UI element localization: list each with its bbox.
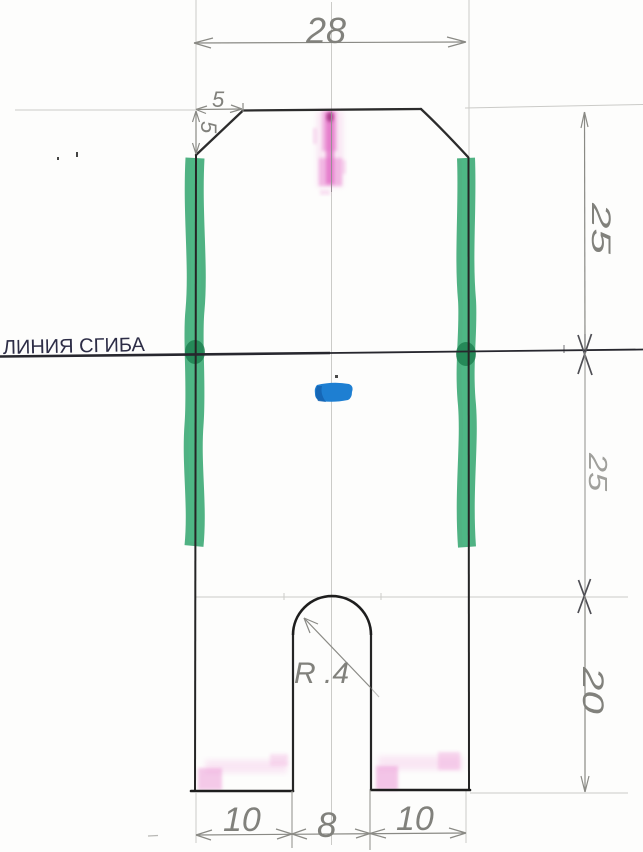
svg-text:ЛИНИЯ СГИБА: ЛИНИЯ СГИБА — [3, 334, 146, 359]
svg-text:8: 8 — [317, 806, 337, 845]
svg-text:5: 5 — [196, 121, 221, 134]
svg-text:28: 28 — [305, 10, 346, 51]
svg-text:25: 25 — [583, 452, 612, 491]
svg-text:10: 10 — [223, 801, 261, 839]
svg-text:20: 20 — [576, 666, 610, 714]
svg-text:R .4: R .4 — [294, 657, 349, 690]
svg-text:10: 10 — [396, 800, 434, 838]
svg-text:25: 25 — [586, 202, 616, 256]
svg-text:5: 5 — [212, 87, 225, 112]
